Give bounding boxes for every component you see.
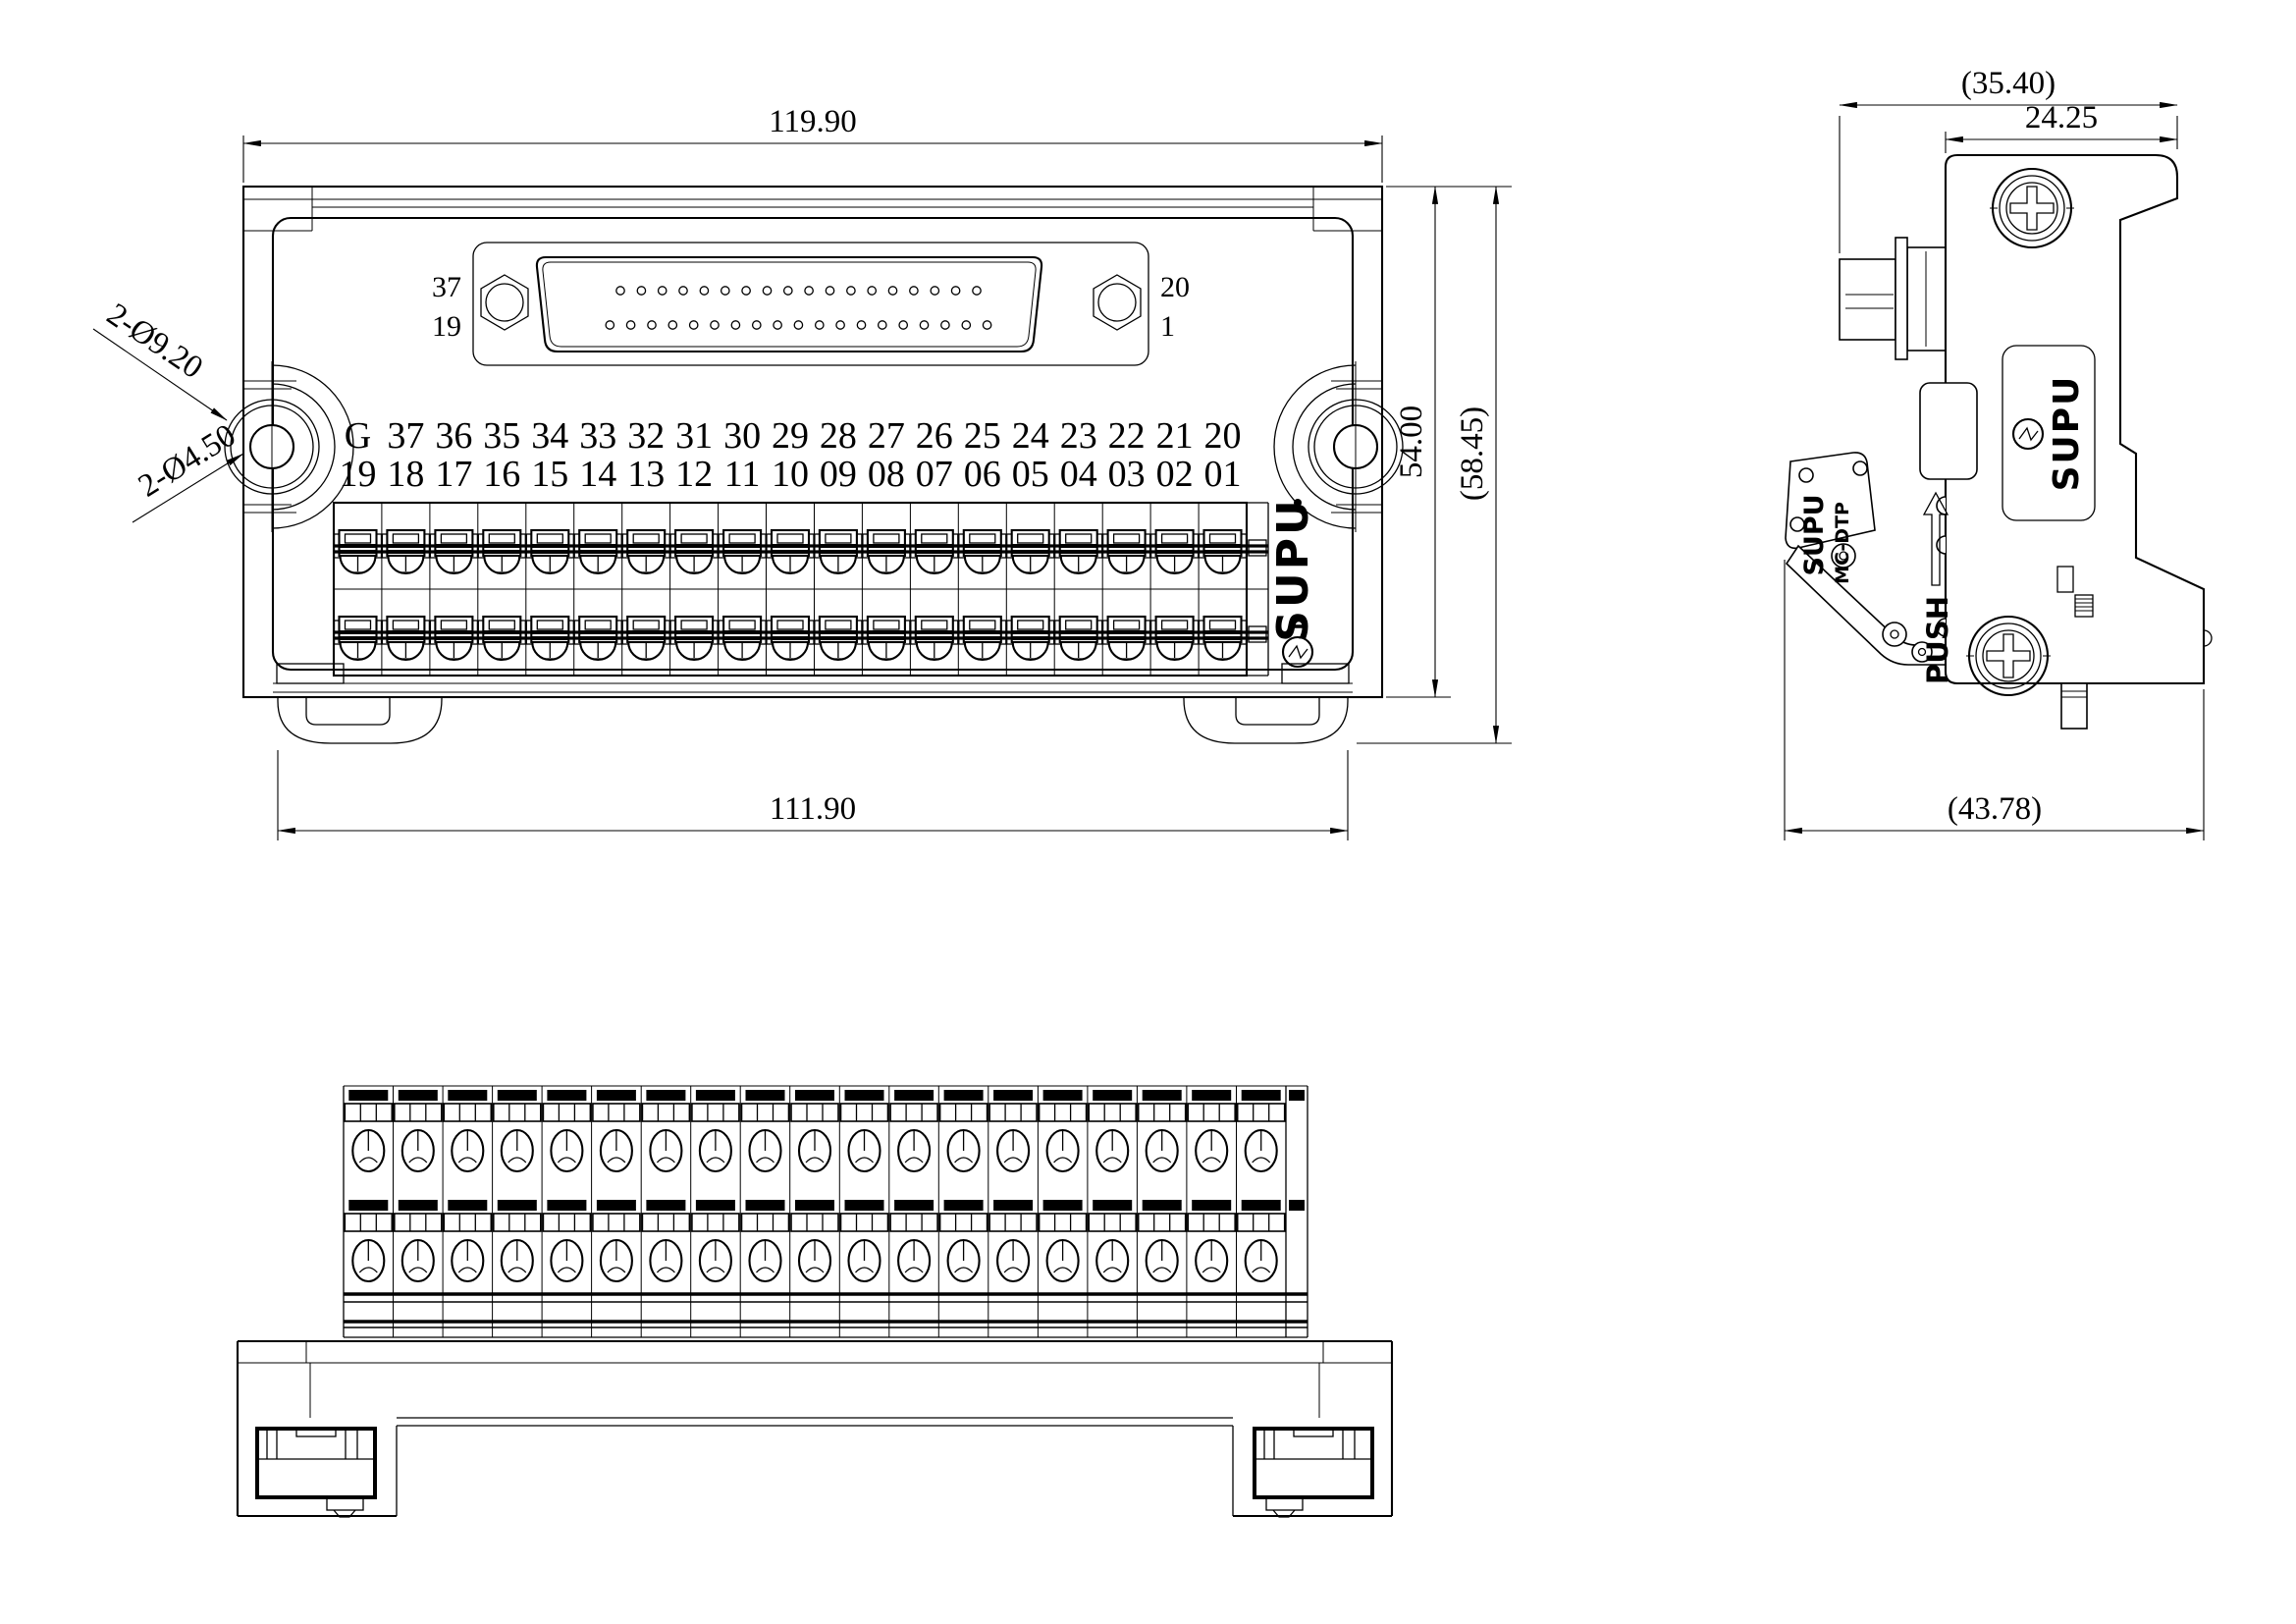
terminal-screw-icon <box>1151 617 1199 660</box>
dsub37-connector: 37 19 20 1 <box>432 243 1190 365</box>
terminal-screw-icon <box>1238 1200 1285 1281</box>
terminal-label-row2: 12 <box>675 454 713 495</box>
dim-label-bottom-width: 111.90 <box>770 791 856 827</box>
dim-label-height: 54.00 <box>1394 406 1429 478</box>
pin-label-bottom-left: 19 <box>432 310 461 343</box>
dsub-pin <box>973 287 981 295</box>
dsub-pin <box>962 321 970 329</box>
bottom-terminal-columns <box>345 1086 1284 1337</box>
front-foot-right <box>1184 697 1348 743</box>
terminal-screw-icon <box>395 1200 442 1281</box>
hole-note-inner: 2-Ø4.50 <box>133 417 242 504</box>
push-label: PUSH <box>1921 596 1954 684</box>
terminal-screw-icon <box>841 1090 888 1171</box>
side-view: (35.40) 24.25 SUPU MC-DTP <box>1785 66 2212 840</box>
terminal-label-row2: 17 <box>435 454 472 495</box>
terminal-screw-icon <box>911 617 958 660</box>
terminal-screw-icon <box>791 1090 838 1171</box>
terminal-screw-icon <box>622 617 669 660</box>
terminal-screw-icon <box>1007 617 1054 660</box>
dim-label-overall-width: (43.78) <box>1948 791 2042 827</box>
terminal-screw-icon <box>911 530 958 573</box>
terminal-screw-icon <box>863 530 910 573</box>
front-dim-overall-height: (58.45) <box>1357 187 1512 743</box>
dsub-pin <box>763 287 771 295</box>
dsub-pin <box>931 287 938 295</box>
terminal-label-row1: 22 <box>1108 415 1146 457</box>
terminal-label-row2: 05 <box>1012 454 1049 495</box>
dsub-pin <box>648 321 656 329</box>
din-clamp-right <box>1255 1429 1372 1517</box>
terminal-label-row2: 19 <box>340 454 377 495</box>
terminal-screw-icon <box>622 530 669 573</box>
dsub-pin <box>774 321 781 329</box>
side-dim-body-depth: 24.25 <box>1946 100 2177 153</box>
terminal-screw-icon <box>1139 1090 1186 1171</box>
terminal-screw-icon <box>742 1200 789 1281</box>
dsub-pin <box>679 287 687 295</box>
terminal-label-row1: 33 <box>579 415 616 457</box>
terminal-screw-icon <box>494 1090 541 1171</box>
terminal-label-row1: 20 <box>1204 415 1242 457</box>
terminal-label-row2: 18 <box>387 454 424 495</box>
terminal-label-row1: 23 <box>1060 415 1097 457</box>
front-view: 119.90 37 19 20 <box>93 104 1512 840</box>
terminal-label-row2: 06 <box>964 454 1001 495</box>
terminal-screw-icon <box>1188 1200 1235 1281</box>
side-foot <box>2061 683 2087 729</box>
dsub-pin <box>847 287 855 295</box>
terminal-screw-icon <box>642 1200 689 1281</box>
dsub-pin <box>910 287 918 295</box>
dsub-pins-bottom-row <box>606 321 991 329</box>
terminal-screw-icon <box>1103 617 1150 660</box>
dsub-pin <box>983 321 990 329</box>
bracket-brand-text: SUPU <box>1799 494 1830 575</box>
terminal-label-row2: 09 <box>820 454 857 495</box>
dsub-pin <box>606 321 614 329</box>
terminal-screw-icon <box>642 1090 689 1171</box>
terminal-screw-icon <box>543 1200 590 1281</box>
dim-label-body-depth: 24.25 <box>2025 100 2098 135</box>
terminal-screw-icon <box>890 1200 937 1281</box>
terminal-label-row2: 04 <box>1060 454 1097 495</box>
front-terminal-screws <box>335 530 1247 660</box>
side-latch <box>1920 383 1977 479</box>
front-brand-text: SUPU <box>1268 497 1318 641</box>
bottom-base <box>238 1341 1392 1516</box>
dim-label-top-width: 119.90 <box>769 104 857 139</box>
terminal-label-row1: 35 <box>483 415 520 457</box>
terminal-screw-icon <box>430 617 477 660</box>
dsub-pin <box>659 287 667 295</box>
terminal-screw-icon <box>815 617 862 660</box>
terminal-label-row1: 21 <box>1156 415 1194 457</box>
terminal-screw-icon <box>989 1200 1037 1281</box>
terminal-label-row1: 26 <box>916 415 953 457</box>
side-brand-text: SUPU <box>2047 375 2087 492</box>
terminal-label-row1: 31 <box>675 415 713 457</box>
jackscrew-left-icon <box>481 275 528 330</box>
dsub-pin <box>731 321 739 329</box>
dsub-pin <box>857 321 865 329</box>
terminal-screw-icon <box>692 1090 739 1171</box>
terminal-screw-icon <box>940 1090 988 1171</box>
dsub-pin <box>951 287 959 295</box>
terminal-screw-icon <box>335 530 382 573</box>
terminal-screw-icon <box>526 617 573 660</box>
terminal-screw-icon <box>1089 1200 1136 1281</box>
terminal-screw-icon <box>478 617 525 660</box>
terminal-screw-icon <box>959 617 1006 660</box>
terminal-label-row2: 03 <box>1108 454 1146 495</box>
bottom-view <box>238 1086 1392 1517</box>
terminal-label-row1: 34 <box>531 415 568 457</box>
dsub-pin <box>816 321 824 329</box>
terminal-screw-icon <box>494 1200 541 1281</box>
terminal-screw-icon <box>444 1090 491 1171</box>
dim-label-overall-height: (58.45) <box>1455 406 1490 501</box>
pin-label-bottom-right: 1 <box>1160 310 1175 343</box>
terminal-screw-icon <box>767 530 814 573</box>
terminal-label-row1: 28 <box>820 415 857 457</box>
terminal-screw-icon <box>719 530 766 573</box>
dsub-pin <box>805 287 813 295</box>
dsub-pin <box>711 321 719 329</box>
terminal-screw-icon <box>574 617 621 660</box>
side-connector-stub <box>1840 238 1946 359</box>
terminal-screw-icon <box>335 617 382 660</box>
terminal-screw-icon <box>1055 617 1102 660</box>
terminal-label-row2: 01 <box>1204 454 1242 495</box>
terminal-screw-icon <box>841 1200 888 1281</box>
terminal-label-row1: 27 <box>868 415 905 457</box>
terminal-label-row1: G <box>345 415 371 457</box>
terminal-screw-icon <box>345 1090 392 1171</box>
terminal-screw-icon <box>543 1090 590 1171</box>
terminal-screw-icon <box>742 1090 789 1171</box>
terminal-screw-icon <box>1007 530 1054 573</box>
terminal-screw-icon <box>767 617 814 660</box>
terminal-screw-icon <box>890 1090 937 1171</box>
dsub-pin <box>668 321 676 329</box>
front-terminal-block <box>334 503 1268 676</box>
dsub-pin <box>753 321 761 329</box>
dsub-pin <box>888 287 896 295</box>
dsub-pin <box>920 321 928 329</box>
terminal-label-row2: 13 <box>627 454 665 495</box>
dsub-pin <box>721 287 729 295</box>
dsub-pin <box>836 321 844 329</box>
terminal-screw-icon <box>526 530 573 573</box>
terminal-label-row2: 08 <box>868 454 905 495</box>
terminal-screw-icon <box>1200 617 1247 660</box>
terminal-label-row2: 07 <box>916 454 953 495</box>
dsub-pin <box>637 287 645 295</box>
front-dim-top-width: 119.90 <box>243 104 1382 183</box>
terminal-screw-icon <box>395 1090 442 1171</box>
dsub-pin <box>742 287 750 295</box>
terminal-screw-icon <box>1238 1090 1285 1171</box>
terminal-screw-icon <box>940 1200 988 1281</box>
dsub-pin <box>616 287 624 295</box>
front-terminal-labels: G193718361735163415331432133112301129102… <box>340 415 1242 495</box>
terminal-screw-icon <box>1151 530 1199 573</box>
dsub-pin <box>899 321 907 329</box>
terminal-screw-icon <box>593 1200 640 1281</box>
dsub-pin <box>941 321 949 329</box>
terminal-screw-icon <box>1139 1200 1186 1281</box>
hole-callout-outer: 2-Ø9.20 <box>93 297 227 420</box>
terminal-label-row2: 02 <box>1156 454 1194 495</box>
terminal-screw-icon <box>478 530 525 573</box>
pin-label-top-right: 20 <box>1160 271 1190 303</box>
dim-label-overall-depth: (35.40) <box>1961 66 2056 101</box>
terminal-label-row1: 25 <box>964 415 1001 457</box>
terminal-label-row2: 16 <box>483 454 520 495</box>
terminal-screw-icon <box>382 617 429 660</box>
terminal-label-row1: 30 <box>723 415 761 457</box>
terminal-screw-icon <box>692 1200 739 1281</box>
cad-drawing: 119.90 37 19 20 <box>0 0 2296 1624</box>
terminal-screw-icon <box>1055 530 1102 573</box>
terminal-screw-icon <box>1200 530 1247 573</box>
dsub-pin <box>784 287 792 295</box>
front-brand-logo: SUPU <box>1268 497 1318 667</box>
dsub-pins-top-row <box>616 287 981 295</box>
terminal-screw-icon <box>670 530 718 573</box>
front-dim-bottom-width: 111.90 <box>278 750 1348 840</box>
terminal-screw-icon <box>989 1090 1037 1171</box>
hole-note-outer: 2-Ø9.20 <box>100 297 209 386</box>
terminal-label-row1: 32 <box>627 415 665 457</box>
terminal-label-row2: 10 <box>772 454 809 495</box>
terminal-screw-icon <box>1103 530 1150 573</box>
terminal-label-row2: 11 <box>724 454 761 495</box>
front-foot-left <box>278 697 442 743</box>
terminal-screw-icon <box>345 1200 392 1281</box>
terminal-screw-icon <box>670 617 718 660</box>
terminal-screw-icon <box>444 1200 491 1281</box>
terminal-label-row1: 24 <box>1012 415 1049 457</box>
drawing-sheet: 119.90 37 19 20 <box>0 0 2296 1624</box>
terminal-label-row1: 29 <box>772 415 809 457</box>
terminal-screw-icon <box>863 617 910 660</box>
terminal-screw-icon <box>430 530 477 573</box>
terminal-screw-icon <box>1040 1200 1087 1281</box>
terminal-label-row2: 15 <box>531 454 568 495</box>
dsub-pin <box>794 321 802 329</box>
terminal-screw-icon <box>959 530 1006 573</box>
dsub-pin <box>868 287 876 295</box>
terminal-screw-icon <box>1188 1090 1235 1171</box>
terminal-screw-icon <box>1089 1090 1136 1171</box>
pin-label-top-left: 37 <box>432 271 461 303</box>
terminal-screw-icon <box>815 530 862 573</box>
dsub-pin <box>700 287 708 295</box>
terminal-screw-icon <box>1040 1090 1087 1171</box>
dsub-pin <box>690 321 698 329</box>
bracket-model-text: MC-DTP <box>1832 502 1853 584</box>
jackscrew-right-icon <box>1094 275 1141 330</box>
terminal-label-row2: 14 <box>579 454 616 495</box>
terminal-screw-icon <box>574 530 621 573</box>
terminal-screw-icon <box>382 530 429 573</box>
terminal-screw-icon <box>719 617 766 660</box>
bottom-terminal-block <box>344 1086 1308 1337</box>
terminal-label-row1: 37 <box>387 415 424 457</box>
front-dim-height: 54.00 <box>1386 187 1512 697</box>
dsub-pin <box>879 321 886 329</box>
terminal-screw-icon <box>593 1090 640 1171</box>
dsub-pin <box>626 321 634 329</box>
hole-callout-inner: 2-Ø4.50 <box>133 417 243 522</box>
din-clamp-left <box>257 1429 375 1517</box>
terminal-screw-icon <box>791 1200 838 1281</box>
dsub-pin <box>826 287 833 295</box>
terminal-label-row1: 36 <box>435 415 472 457</box>
